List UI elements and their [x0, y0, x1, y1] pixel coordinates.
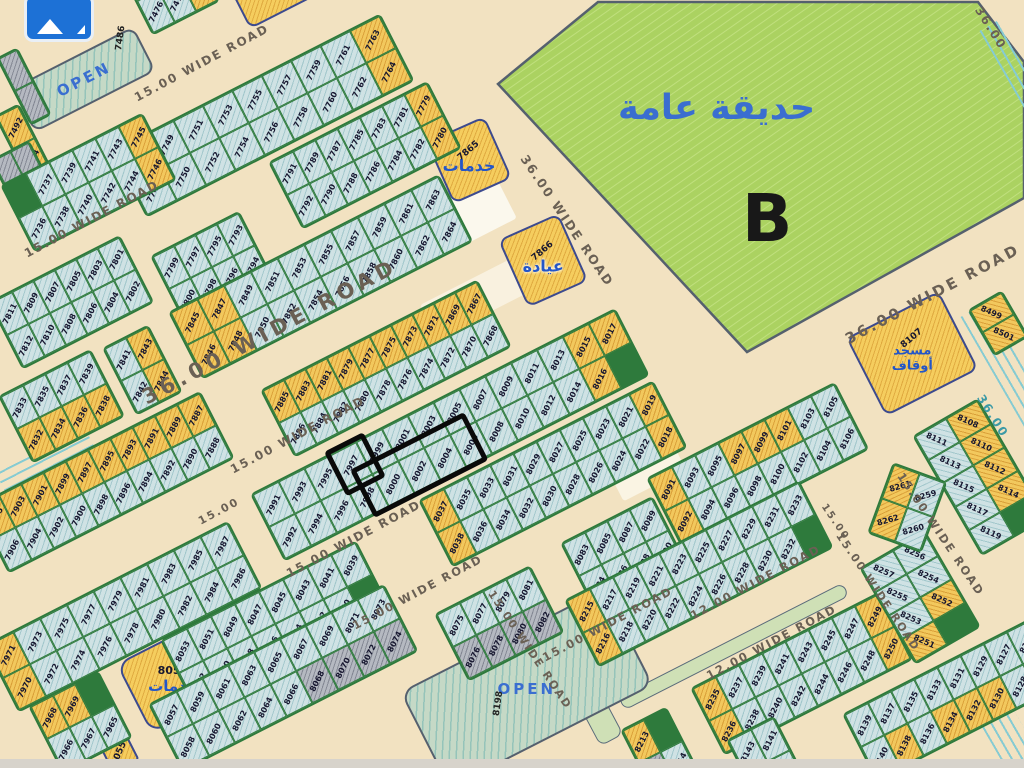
plot-number: 7906	[3, 537, 21, 561]
plot-number: 7791	[281, 161, 299, 185]
plot-number: 7783	[370, 116, 388, 140]
plot-number: 8023	[594, 416, 612, 440]
plot-number: 8128	[1011, 674, 1024, 698]
plot-number: 7753	[217, 103, 235, 127]
plot-number: 8250	[882, 637, 900, 661]
plot-number: 8231	[763, 505, 781, 529]
plot-number: 7867	[465, 291, 483, 315]
triangle-icon	[77, 25, 85, 34]
plot-number: 7811	[0, 301, 18, 325]
mosque-plot-label: مسجد	[893, 344, 931, 359]
plot-number: 8065	[266, 650, 284, 674]
plot-number: 7795	[205, 234, 223, 258]
plot-number: 8215	[577, 599, 595, 623]
plot-number: 8221	[647, 564, 665, 588]
plot-number: 8029	[524, 452, 542, 476]
plot-number: 7869	[444, 302, 462, 326]
plot-number: 7841	[114, 347, 132, 371]
plot-number: 7995	[316, 466, 334, 490]
plot-number: 7849	[237, 283, 255, 307]
park-block-letter: B	[742, 180, 792, 257]
plot-number: 7835	[33, 384, 51, 408]
plot-number: 7806	[81, 301, 99, 325]
plot-number: 8031	[501, 464, 519, 488]
plot-number: 7741	[83, 149, 101, 173]
plot-number: 7876	[396, 367, 414, 391]
plot-number: 8125	[1018, 630, 1024, 654]
plot-number: 8049	[222, 614, 240, 638]
plot-number: 8074	[386, 629, 404, 653]
plot-number: 8247	[842, 616, 860, 640]
plot-number: 7986	[229, 566, 247, 590]
plot-number: 7809	[22, 291, 40, 315]
plot-number: 8133	[925, 678, 943, 702]
plot-number: 8499	[980, 304, 1004, 321]
plot-number: 8129	[971, 654, 989, 678]
plot-number: 7833	[11, 395, 29, 419]
plot-number: 7780	[431, 125, 449, 149]
plot-number: 8104	[815, 438, 833, 462]
plot-number: 7993	[291, 479, 309, 503]
open-area-label: OPEN	[54, 58, 114, 101]
plot-number: 8105	[822, 394, 840, 418]
plot-number: 8130	[988, 686, 1006, 710]
plot-number: 7832	[27, 427, 45, 451]
plot-number: 8082	[533, 610, 551, 634]
plot-number: 8260	[902, 522, 926, 537]
plot-number: 7803	[86, 258, 104, 282]
plot-number: 7758	[292, 105, 310, 129]
plot-number: 7739	[60, 160, 78, 184]
plot-number: 8102	[792, 450, 810, 474]
plot-number: 8068	[308, 669, 326, 693]
plot-number: 7757	[276, 73, 294, 97]
plot-number: 7474	[168, 0, 186, 13]
plot-number: 8059	[189, 689, 207, 713]
plot-number: 8501	[992, 326, 1016, 343]
plot-number: 8127	[994, 642, 1012, 666]
plot-number: 8235	[703, 687, 721, 711]
plot-number: 8132	[964, 698, 982, 722]
plot-number: 8139	[855, 713, 873, 737]
plot-number: 8053	[174, 639, 192, 663]
plot-number: 7966	[57, 737, 75, 761]
plot-number: 8223	[670, 552, 688, 576]
plot-number: 8033	[478, 475, 496, 499]
plot-number: 7847	[210, 297, 228, 321]
plot-number: 7737	[37, 172, 55, 196]
plot-number: 8070	[334, 655, 352, 679]
plot-number: 7981	[133, 575, 151, 599]
plot-number: 7834	[50, 416, 68, 440]
plot-number: 8217	[601, 587, 619, 611]
plot-number: 7899	[54, 471, 72, 495]
plot-number: 8041	[318, 565, 336, 589]
plot-number: 7802	[124, 279, 142, 303]
plot-number: 8141	[761, 728, 779, 752]
plot-number: 7984	[203, 580, 221, 604]
plot-number: 7888	[204, 435, 222, 459]
plot-number: 8010	[514, 406, 532, 430]
plot-number: 7994	[307, 511, 325, 535]
plot-number: 7979	[106, 589, 124, 613]
plot-number: 7991	[265, 492, 283, 516]
plot-number: 7845	[183, 310, 201, 334]
plot-number: 8069	[318, 623, 336, 647]
plot-number: 7885	[272, 389, 290, 413]
plot-number: 8108	[956, 413, 980, 430]
plot-number: 7881	[315, 368, 333, 392]
plot-number: 7751	[187, 117, 205, 141]
plot-number: 7836	[72, 405, 90, 429]
plot-number: 7973	[26, 630, 44, 654]
plot-number: 8075	[447, 613, 465, 637]
plot-number: 8219	[624, 575, 642, 599]
plot-number: 8025	[570, 428, 588, 452]
plot-number: 8039	[342, 553, 360, 577]
plot-number: 8035	[455, 487, 473, 511]
plot-number: 7785	[348, 127, 366, 151]
plot-number: 8092	[676, 509, 694, 533]
plot-number: 7883	[294, 379, 312, 403]
plot-number: 7790	[320, 182, 338, 206]
plot-number: 8047	[246, 602, 264, 626]
plot-number: 7868	[481, 324, 499, 348]
plot-number: 7980	[149, 607, 167, 631]
plot-number: 8252	[930, 592, 954, 609]
plot-number: 8038	[448, 531, 466, 555]
plot-number: 7472	[190, 0, 208, 2]
plot-number: 7887	[187, 403, 205, 427]
plot-number: 7843	[136, 337, 154, 361]
plot-number: 7978	[122, 621, 140, 645]
plot-number: 7878	[374, 378, 392, 402]
plot-number: 8134	[941, 710, 959, 734]
plot-number: 8135	[902, 689, 920, 713]
plot-number: 8019	[640, 393, 658, 417]
plot-number: 8013	[549, 348, 567, 372]
plot-number: 8083	[573, 542, 591, 566]
plot-number: 8024	[610, 449, 628, 473]
plot-number: 8027	[547, 440, 565, 464]
plot-number: 7763	[364, 28, 382, 52]
plot-number: 8119	[979, 524, 1003, 541]
plot-number: 8077	[471, 601, 489, 625]
plot-number: 8012	[539, 393, 557, 417]
plot-number: 7810	[38, 323, 56, 347]
plot-number: 7859	[370, 215, 388, 239]
plot-number: 7873	[401, 324, 419, 348]
plot-number: 8015	[575, 334, 593, 358]
plot-number: 7851	[263, 269, 281, 293]
plot-number: 8131	[948, 666, 966, 690]
plot-number: 7895	[98, 449, 116, 473]
plot-number: 7784	[386, 148, 404, 172]
plot-number: 8022	[633, 437, 651, 461]
plot-number: 8051	[198, 627, 216, 651]
plot-number: 7970	[15, 675, 33, 699]
plot-number: 7807	[43, 280, 61, 304]
plot-number: 7996	[333, 498, 351, 522]
plot-number: 8096	[722, 486, 740, 510]
plot-number: 7792	[297, 193, 315, 217]
plot-number: 7894	[137, 469, 155, 493]
plot-number: 7801	[107, 247, 125, 271]
plot-number: 7871	[422, 313, 440, 337]
plot-number: 7872	[439, 345, 457, 369]
plot-number: 7857	[344, 228, 362, 252]
clinic-plot-label: عيادة	[523, 256, 564, 275]
plot-number: 8007	[471, 387, 489, 411]
plot-number: 8094	[699, 497, 717, 521]
plot-number: 8240	[766, 696, 784, 720]
plot-number: 8017	[601, 321, 619, 345]
plot-number: 8245	[819, 628, 837, 652]
plot-number: 7754	[233, 135, 251, 159]
plot-number: 7977	[79, 602, 97, 626]
plot-number: 8243	[796, 640, 814, 664]
plot-number: 7782	[409, 137, 427, 161]
plot-number: 7898	[92, 492, 110, 516]
plot-number: 8032	[517, 496, 535, 520]
plot-number: 7891	[143, 426, 161, 450]
plot-number: 7890	[181, 447, 199, 471]
plot-number: 7752	[204, 150, 222, 174]
plot-number: 7789	[303, 150, 321, 174]
plot-number: 7879	[337, 357, 355, 381]
plot-number: 8030	[540, 484, 558, 508]
plot-number: 8026	[587, 460, 605, 484]
plot-number: 8248	[859, 648, 877, 672]
plot-number: 8241	[773, 652, 791, 676]
plot-number: 7755	[246, 88, 264, 112]
bottom-bar	[0, 759, 1024, 768]
plot-number: 7864	[440, 220, 458, 244]
plot-number: 8095	[706, 453, 724, 477]
plot-number: 7967	[80, 726, 98, 750]
plot-number: 7808	[60, 312, 78, 336]
map-app-icon[interactable]	[24, 0, 94, 42]
plot-number: 7760	[321, 90, 339, 114]
plot-number: 7764	[380, 60, 398, 84]
plot-number: 7797	[184, 245, 202, 269]
plot-number: 7476	[147, 0, 165, 23]
plot-number: 7992	[281, 524, 299, 548]
plot-number: 7875	[379, 335, 397, 359]
plot-number: 8138	[895, 733, 913, 757]
plot-number: 7905	[0, 505, 5, 529]
plot-number: 7855	[317, 242, 335, 266]
plot-number: 8036	[471, 519, 489, 543]
plot-number: 8081	[517, 578, 535, 602]
plot-number: 8057	[163, 702, 181, 726]
plot-number: 8061	[214, 676, 232, 700]
plot-number: 7985	[186, 548, 204, 572]
plot-number: 8237	[727, 675, 745, 699]
plot-number: 8014	[565, 380, 583, 404]
plot-number: 8101	[775, 418, 793, 442]
plot-number: 7861	[397, 201, 415, 225]
plot-number: 8103	[798, 406, 816, 430]
plot-number: 7892	[159, 458, 177, 482]
plot-number: 8113	[939, 454, 963, 471]
plot-number: 8112	[983, 460, 1007, 477]
plot-number: 8058	[179, 734, 197, 758]
plot-number: 7889	[165, 414, 183, 438]
plot-number: 8246	[836, 660, 854, 684]
plot-number: 7900	[70, 503, 88, 527]
plot-number: 7743	[106, 137, 124, 161]
plot-number: 7968	[41, 705, 59, 729]
plot-number: 7838	[94, 393, 112, 417]
plot-number: 8011	[523, 361, 541, 385]
plot-number: 8242	[789, 684, 807, 708]
plot-number: 8254	[917, 568, 941, 585]
plot-number: 7762	[351, 75, 369, 99]
plot-number: 7793	[227, 223, 245, 247]
services-plot-label: خدمات	[443, 156, 496, 175]
plot-number: 8064	[257, 695, 275, 719]
plot-number: 8009	[497, 374, 515, 398]
plot-number: 7987	[213, 534, 231, 558]
plot-number: 7812	[17, 334, 35, 358]
plot-number: 8091	[659, 477, 677, 501]
plot-number: 8106	[838, 427, 856, 451]
plot-number: 8097	[729, 442, 747, 466]
plot-number: 7965	[102, 715, 120, 739]
plot-number: 8137	[879, 701, 897, 725]
plot-number: 7896	[115, 481, 133, 505]
plot-number: 8076	[464, 645, 482, 669]
plot-number: 7974	[69, 648, 87, 672]
plot-number: 8233	[786, 493, 804, 517]
mosque-plot-label: أوقاف	[892, 359, 933, 374]
plot-number: 8067	[292, 637, 310, 661]
plot-number: 7750	[174, 165, 192, 189]
plot-number: 8111	[925, 431, 949, 448]
plot-number: 8028	[564, 472, 582, 496]
plot-number: 8085	[595, 531, 613, 555]
plot-number: 8136	[918, 722, 936, 746]
plot-map: حديقة عامة B OPEN 7486 OPEN 8198 أوقاف 7…	[0, 0, 1024, 768]
plot-number: 7975	[53, 616, 71, 640]
plot-number: 7969	[63, 694, 81, 718]
plot-number: 8100	[768, 462, 786, 486]
park-name-label: حديقة عامة	[618, 88, 815, 128]
plot-number: 7976	[96, 634, 114, 658]
plot-number: 7788	[342, 171, 360, 195]
plot-number: 7897	[76, 460, 94, 484]
plot-number: 7759	[305, 58, 323, 82]
plot-number: 7804	[102, 290, 120, 314]
plot-number: 7805	[65, 269, 83, 293]
plot-number: 7745	[129, 125, 147, 149]
plot-number: 8244	[812, 672, 830, 696]
plot-number: 7839	[78, 361, 96, 385]
plot-number: 8229	[740, 516, 758, 540]
plot-number: 8093	[683, 465, 701, 489]
plot-number: 8008	[488, 419, 506, 443]
plot-number: 8034	[494, 508, 512, 532]
plot-number: 7492	[6, 115, 24, 139]
plot-number: 8213	[632, 729, 650, 753]
plot-number: 7904	[26, 526, 44, 550]
plot-number: 8087	[617, 520, 635, 544]
plot-number: 8110	[970, 436, 994, 453]
plot-number: 7863	[424, 188, 442, 212]
plot-number: 7972	[42, 662, 60, 686]
plot-number: 8078	[487, 633, 505, 657]
plot-number: 7862	[413, 233, 431, 257]
plot-number: 7877	[358, 346, 376, 370]
plot-number: 8066	[282, 682, 300, 706]
plot-number: 8018	[656, 425, 674, 449]
plot-number: 7874	[417, 356, 435, 380]
plot-number: 8225	[693, 540, 711, 564]
plot-number: 8117	[966, 501, 990, 518]
plot-number: 8016	[591, 366, 609, 390]
plot-number: 8099	[752, 430, 770, 454]
plot-number: 8021	[617, 405, 635, 429]
plot-number: 8227	[716, 528, 734, 552]
plot-number: 8089	[640, 508, 658, 532]
plot-number: 7853	[290, 256, 308, 280]
plot-number: 7756	[262, 120, 280, 144]
plot-number: 7799	[162, 255, 180, 279]
plot-number: 7901	[31, 483, 49, 507]
plot-number: 7787	[325, 139, 343, 163]
plot-number: 7870	[460, 334, 478, 358]
plot-number: 7761	[334, 43, 352, 67]
plot-number: 8098	[745, 474, 763, 498]
plot-number: 7982	[176, 594, 194, 618]
plot-number: 7902	[48, 515, 66, 539]
plot-number: 7837	[55, 373, 73, 397]
plot-number: 8063	[240, 663, 258, 687]
plot-number: 8262	[876, 513, 900, 528]
plot-number: 8060	[205, 721, 223, 745]
plot-number: 8114	[997, 483, 1021, 500]
plot-number: 7903	[9, 494, 27, 518]
plot-number: 7893	[121, 437, 139, 461]
plot-number: 7779	[415, 93, 433, 117]
plot-number: 7786	[364, 159, 382, 183]
plot-number: 8062	[231, 708, 249, 732]
plot-number: 8045	[270, 590, 288, 614]
plot-number: 8115	[952, 478, 976, 495]
plot-number: 8072	[360, 642, 378, 666]
mountain-icon	[37, 19, 63, 34]
plot-number: 7971	[0, 643, 17, 667]
plot-number: 7983	[160, 561, 178, 585]
plot-number: 7781	[392, 105, 410, 129]
plot-number: 8043	[294, 578, 312, 602]
plot-number: 8239	[750, 663, 768, 687]
plot-number: 8037	[431, 499, 449, 523]
